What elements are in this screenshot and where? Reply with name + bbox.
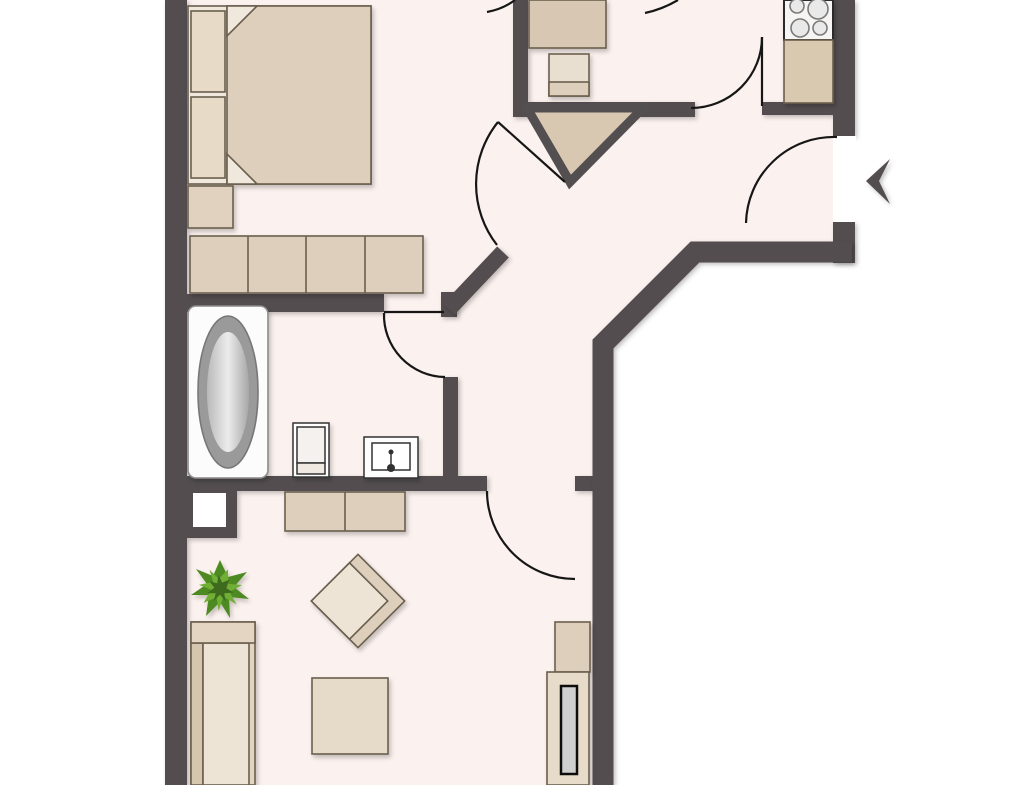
entrance-arrow-icon <box>866 159 890 204</box>
bathtub-basin <box>207 332 249 452</box>
bed-mattress <box>227 6 371 184</box>
toilet-bowl <box>297 427 325 463</box>
sofa <box>191 622 255 785</box>
tv-shelf <box>555 622 590 672</box>
stove <box>784 0 833 40</box>
burner <box>808 0 828 19</box>
tv-screen <box>561 686 577 774</box>
livingroom-door-frame-block <box>575 476 593 491</box>
sink <box>364 437 418 478</box>
right-outer-wall-top <box>833 0 855 136</box>
pillow <box>191 97 225 178</box>
bedroom-kitchen-wall <box>513 0 528 112</box>
kitchen-counter <box>784 40 833 103</box>
burner <box>813 21 827 35</box>
left-outer-wall <box>165 0 187 785</box>
sofa-armrest <box>191 622 255 643</box>
double-bed <box>188 6 371 184</box>
sofa-seat <box>203 643 249 785</box>
wardrobe <box>190 236 423 293</box>
bathroom-right-wall <box>443 377 458 491</box>
floor-plan-canvas <box>0 0 1018 785</box>
pillow <box>191 11 225 92</box>
burner <box>791 19 809 37</box>
burner <box>790 0 804 13</box>
bathtub <box>188 306 268 478</box>
dining-table <box>529 0 606 48</box>
hall-bottom-wall-and-livingroom-right-wall <box>603 252 852 785</box>
installation-shaft <box>193 493 226 527</box>
sink-faucet-head <box>387 464 395 472</box>
chair <box>549 54 589 96</box>
sideboard <box>285 492 405 531</box>
toilet <box>293 423 329 477</box>
chair-backrest <box>549 82 589 96</box>
entrance-opening <box>833 136 856 222</box>
nightstand <box>188 186 233 228</box>
hall-top-wall-right <box>762 102 833 115</box>
sofa-backrest <box>191 643 203 785</box>
coffee-table <box>312 678 388 754</box>
toilet-tank <box>297 463 325 474</box>
tv-lowboard <box>547 672 589 785</box>
floor-plan <box>0 0 1018 785</box>
